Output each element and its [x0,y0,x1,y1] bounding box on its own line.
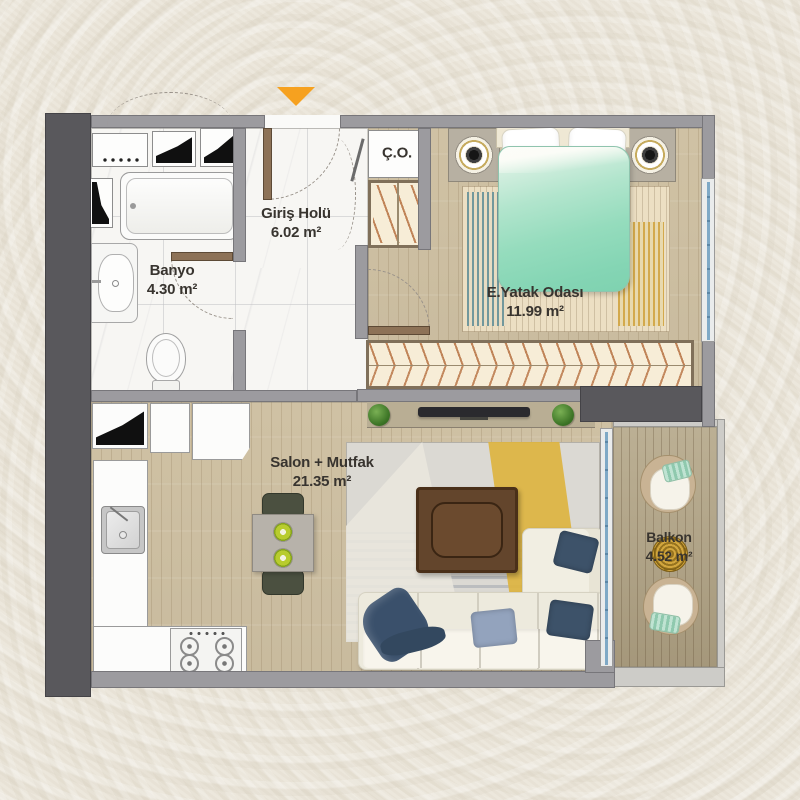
room-name: E.Yatak Odası [487,283,584,302]
wall-below-wardrobe [357,389,585,402]
wall-shaft-balcony [580,386,702,422]
room-name: Ç.O. [382,144,412,163]
wall-hall-living [91,390,357,402]
stove [170,628,242,672]
toilet-bowl [152,339,180,377]
room-name: Banyo [147,261,197,280]
nightstand-left [448,128,500,182]
lamp-icon [452,133,496,177]
shaft-box [152,131,196,167]
entrance-arrow-icon [277,87,315,106]
washing-machine [92,133,148,167]
nightstand-right [624,128,676,182]
window-glass-line [605,432,608,665]
room-label-giris: Giriş Holü 6.02 m² [261,204,331,242]
kitchen-sink [101,506,145,554]
bedroom-window [701,178,715,342]
floor-plan: Giriş Holü 6.02 m² Banyo 4.30 m² Ç.O. E.… [0,0,800,800]
room-label-salon: Salon + Mutfak 21.35 m² [270,453,373,491]
bathtub-basin [126,178,233,234]
wardrobe-hangers-row [369,343,691,367]
room-label-yatak: E.Yatak Odası 11.99 m² [487,283,584,321]
shaft-mark [92,182,109,224]
kitchen-appliance [150,403,190,453]
cabinet-swing-arc [107,92,233,126]
bathtub [120,172,239,240]
refrigerator [192,403,250,460]
sofa-pillow [470,608,518,648]
room-area: 6.02 m² [261,223,331,242]
plant-icon [552,404,574,426]
kitchen-appliance [92,403,148,449]
room-label-banyo: Banyo 4.30 m² [147,261,197,299]
shaft-mark [156,135,192,163]
balcony-chair [640,455,696,513]
wall-shaft-left [45,113,91,697]
balcony-sliding-door [600,428,613,667]
room-name: Giriş Holü [261,204,331,223]
plate [273,548,293,568]
balcony-railing-right [717,419,725,687]
sink-drain [119,531,127,539]
shaft-mark [96,407,144,445]
closet-divider [397,183,399,245]
room-area: 21.35 m² [270,472,373,491]
room-label-balkon: Balkon 4.52 m² [646,528,693,566]
toilet [146,333,186,383]
shaft-box [88,178,113,228]
coffee-table [416,487,518,573]
coffee-table-inlay [431,502,503,558]
bed-duvet [498,146,630,292]
tv-stand [460,417,488,420]
plate [273,522,293,542]
balcony-chair [643,577,699,635]
wall-top-right [340,115,715,128]
bed-duvet-fold [499,147,629,173]
sofa-pillow [546,599,595,641]
dining-table [252,514,314,572]
tv [418,407,530,417]
room-label-co: Ç.O. [382,144,412,163]
wardrobe-hangers-row [369,366,691,386]
room-area: 4.52 m² [646,547,693,566]
bathtub-faucet [130,203,136,209]
window-glass-line [707,182,710,340]
bedroom-door-leaf [368,326,430,335]
lamp-icon [628,133,672,177]
room-name: Balkon [646,528,693,547]
room-area: 4.30 m² [147,280,197,299]
wall-bottom [91,671,615,688]
room-area: 11.99 m² [487,302,584,321]
entrance-threshold [265,115,340,128]
wardrobe [366,340,694,389]
bathroom-sink [91,243,138,323]
shaft-mark [204,132,234,163]
entrance-door-leaf [263,128,272,200]
bathroom-door-leaf [171,252,233,261]
wall-bathroom-hall-top [233,128,246,262]
wall-hall-corridor [355,245,368,339]
washer-knob-dots [101,156,141,164]
room-name: Salon + Mutfak [270,453,373,472]
dining-chair [262,569,304,595]
plant-icon [368,404,390,426]
stove-knobs [187,631,227,636]
sink-drain [112,280,119,287]
sink-faucet [92,280,101,283]
wall-co-right [418,128,431,250]
